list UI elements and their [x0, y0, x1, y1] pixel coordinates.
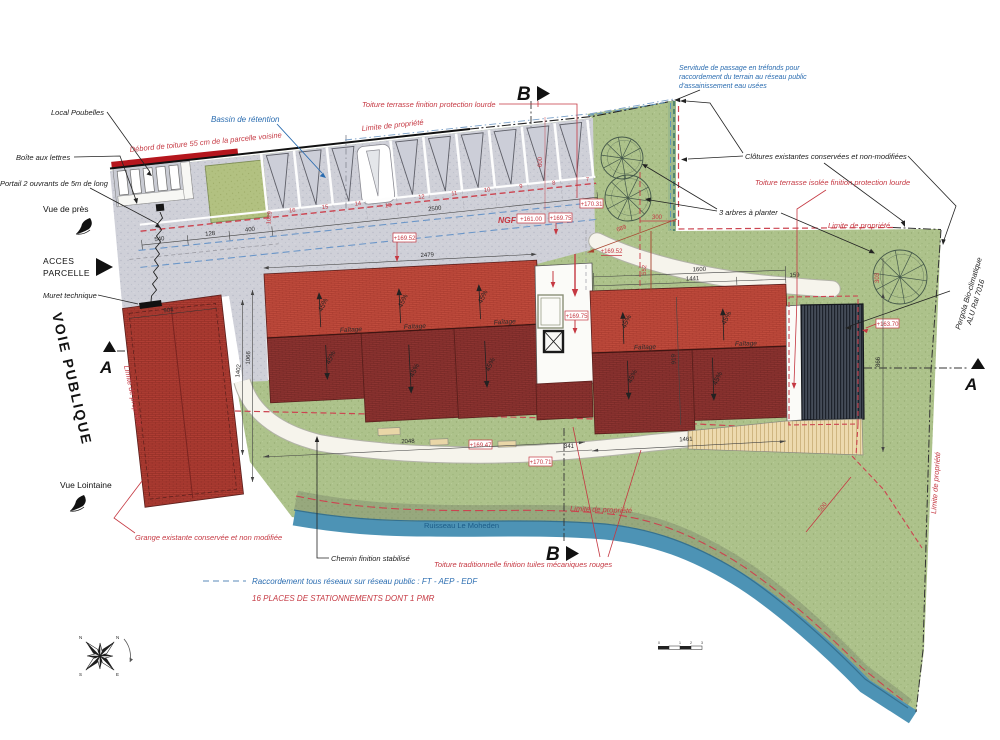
svg-text:2048: 2048	[401, 439, 415, 446]
svg-text:Vue Lointaine: Vue Lointaine	[60, 480, 112, 490]
svg-text:3: 3	[701, 641, 703, 645]
svg-text:16: 16	[289, 208, 296, 215]
svg-text:+170.31: +170.31	[581, 202, 604, 208]
svg-text:2479: 2479	[420, 252, 434, 259]
svg-text:+169.47: +169.47	[470, 443, 493, 449]
svg-text:+169.52: +169.52	[394, 236, 417, 242]
svg-text:Vue de près: Vue de près	[43, 204, 89, 214]
svg-text:Muret technique: Muret technique	[43, 291, 97, 300]
svg-text:1066: 1066	[246, 350, 253, 364]
svg-text:Toiture terrasse finition prot: Toiture terrasse finition protection lou…	[362, 100, 496, 109]
svg-text:E: E	[116, 672, 119, 677]
svg-text:NGF: NGF	[498, 215, 517, 225]
svg-text:Clôtures existantes conservées: Clôtures existantes conservées et non-mo…	[745, 152, 907, 161]
svg-text:11: 11	[451, 191, 458, 198]
svg-text:400: 400	[245, 227, 256, 234]
svg-text:12: 12	[418, 194, 425, 201]
svg-text:Faîtage: Faîtage	[494, 318, 517, 326]
svg-text:Raccordement tous réseaux sur: Raccordement tous réseaux sur réseau pub…	[252, 577, 478, 586]
svg-text:1461: 1461	[679, 437, 693, 444]
svg-text:159: 159	[789, 273, 800, 279]
svg-text:Faîtage: Faîtage	[735, 340, 758, 348]
svg-text:Toiture traditionnelle finitio: Toiture traditionnelle finition tuiles m…	[434, 560, 612, 569]
svg-text:Faîtage: Faîtage	[404, 323, 427, 331]
svg-text:Bassin de rétention: Bassin de rétention	[211, 115, 280, 124]
svg-text:Boîte aux lettres: Boîte aux lettres	[16, 153, 70, 162]
svg-text:904: 904	[163, 307, 174, 314]
svg-text:N: N	[79, 635, 82, 640]
svg-text:1441: 1441	[686, 276, 700, 282]
svg-text:303: 303	[875, 272, 881, 283]
svg-text:Portail 2 ouvrants de 5m de lo: Portail 2 ouvrants de 5m de long	[0, 179, 109, 188]
svg-text:PARCELLE: PARCELLE	[43, 268, 90, 278]
svg-text:+170.71: +170.71	[530, 460, 553, 466]
svg-text:9: 9	[519, 184, 523, 190]
svg-text:866: 866	[876, 356, 882, 367]
svg-text:B: B	[517, 84, 531, 105]
svg-text:1: 1	[679, 641, 681, 645]
svg-text:N: N	[116, 635, 119, 640]
svg-text:+169.75: +169.75	[550, 216, 573, 222]
svg-text:Local Poubelles: Local Poubelles	[51, 108, 104, 117]
svg-text:Limite de propriété: Limite de propriété	[828, 221, 890, 230]
svg-text:ACCES: ACCES	[43, 256, 74, 266]
svg-text:Grange existante conservée et: Grange existante conservée et non modifi…	[135, 533, 282, 542]
svg-text:16 PLACES DE STATIONNEMENTS DO: 16 PLACES DE STATIONNEMENTS DONT 1 PMR	[252, 594, 435, 603]
svg-text:1600: 1600	[693, 267, 707, 273]
svg-text:15: 15	[322, 204, 329, 211]
svg-text:+169.75: +169.75	[566, 314, 589, 320]
svg-text:10: 10	[484, 187, 491, 194]
svg-text:A: A	[964, 375, 977, 394]
svg-text:d'assainissement eau usées: d'assainissement eau usées	[679, 83, 767, 90]
svg-text:300: 300	[652, 215, 663, 221]
svg-text:Toiture terrasse isolée finiti: Toiture terrasse isolée finition protect…	[755, 178, 910, 187]
svg-text:+161.00: +161.00	[520, 217, 543, 223]
svg-text:Servitude de passage en tréfon: Servitude de passage en tréfonds pour	[679, 65, 800, 72]
svg-text:+169.52: +169.52	[601, 249, 624, 255]
svg-text:3 arbres à planter: 3 arbres à planter	[719, 208, 778, 217]
svg-text:7: 7	[586, 177, 590, 183]
svg-text:600: 600	[538, 156, 544, 167]
svg-text:341: 341	[564, 444, 575, 450]
svg-text:552: 552	[642, 264, 649, 275]
svg-text:Faîtage: Faîtage	[634, 344, 657, 352]
svg-text:13: 13	[385, 203, 392, 210]
svg-text:8: 8	[552, 181, 556, 187]
svg-text:Chemin finition stabilisé: Chemin finition stabilisé	[331, 554, 410, 563]
svg-text:Ruisseau Le Moheden: Ruisseau Le Moheden	[424, 521, 499, 530]
svg-text:A: A	[99, 358, 112, 377]
svg-text:raccordement du terrain au rés: raccordement du terrain au réseau public	[679, 74, 807, 81]
svg-text:919: 919	[671, 353, 677, 364]
svg-text:128: 128	[205, 231, 216, 238]
svg-text:S: S	[79, 672, 82, 677]
svg-text:+163.70: +163.70	[877, 322, 900, 328]
svg-text:Faîtage: Faîtage	[340, 326, 363, 334]
svg-text:2: 2	[690, 641, 692, 645]
svg-text:0: 0	[658, 641, 660, 645]
